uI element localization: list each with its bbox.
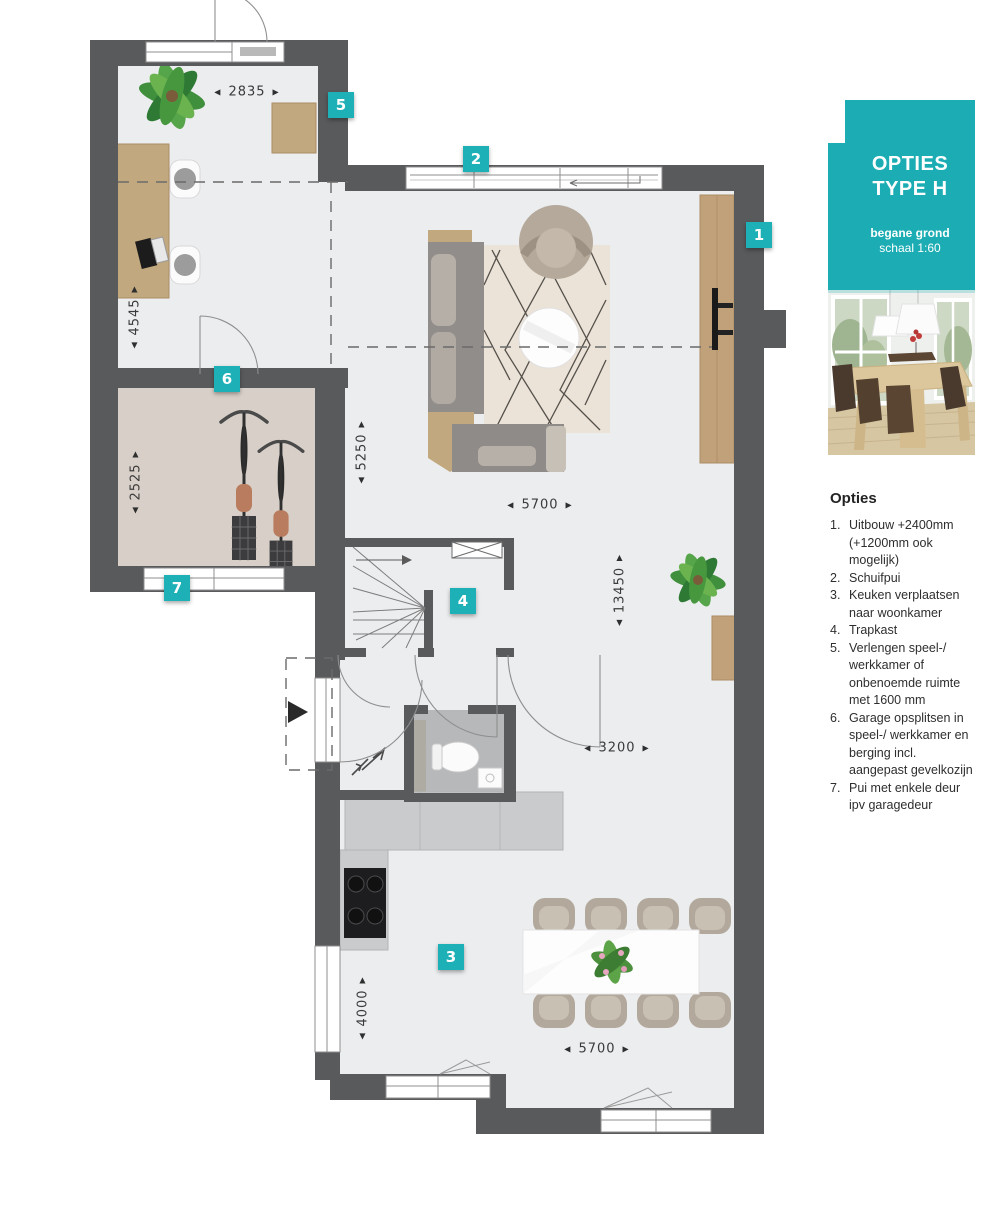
arrow-down-icon: ▼ [359,1032,366,1041]
dining-room-photo [828,290,975,455]
arrow-up-icon: ▲ [358,419,365,428]
dim-3200: ◀ 3200 ▶ [584,741,649,756]
lounge-chair [519,205,593,279]
header-text: OPTIES TYPE H begane grond schaal 1:60 [845,100,975,290]
photo-chair [856,378,882,424]
arrow-down-icon: ▼ [616,618,623,627]
arrow-down-icon: ▼ [132,506,139,515]
option-item: 7. Pui met enkele deur ipv garagedeur [830,780,977,815]
option-item: 4. Trapkast [830,622,977,640]
options-heading: Opties [830,490,977,507]
arrow-left-icon: ◀ [214,88,221,97]
dim-5700-kitchen: ◀ 5700 ▶ [564,1042,629,1057]
entrance-arrow-icon [288,701,308,723]
dim-5250: ▲ 5250 ▼ [355,419,370,484]
dim-2835: ◀ 2835 ▶ [214,85,279,100]
subtitle-floor: begane grond [845,226,975,241]
sink [478,768,502,788]
option-badge-3: 3 [438,944,464,970]
arrow-up-icon: ▲ [616,553,623,562]
option-badge-1: 1 [746,222,772,248]
options-list-section: Opties 1. Uitbouw +2400mm (+1200mm ook m… [830,490,977,815]
arrow-down-icon: ▼ [131,341,138,350]
option-item: 2. Schuifpui [830,570,977,588]
arrow-left-icon: ◀ [507,501,514,510]
option-badge-6: 6 [214,366,240,392]
option-badge-4: 4 [450,588,476,614]
arrow-up-icon: ▲ [359,975,366,984]
floorplan-svg [0,0,820,1231]
page-title-line1: OPTIES [845,152,975,177]
option-item: 3. Keuken verplaatsen naar woonkamer [830,587,977,622]
arrow-right-icon: ▶ [623,1045,630,1054]
arrow-left-icon: ◀ [584,744,591,753]
photo-chair [886,385,914,434]
floorplan-drawing: 1 2 3 4 5 6 7 ◀ 2835 ▶ ▲ 4545 ▼ ▲ 2525 ▼… [0,0,820,1231]
dim-13450: ▲ 13450 ▼ [613,553,628,627]
page-title-line2: TYPE H [845,177,975,202]
subtitle-scale: schaal 1:60 [845,241,975,256]
option-item: 5. Verlengen speel-/ werkkamer of onbeno… [830,640,977,710]
photo-chair [832,364,856,412]
arrow-up-icon: ▲ [131,284,138,293]
arrow-up-icon: ▲ [132,449,139,458]
arrow-right-icon: ▶ [273,88,280,97]
option-badge-2: 2 [463,146,489,172]
arrow-right-icon: ▶ [566,501,573,510]
front-door-office [215,0,267,42]
option-item: 6. Garage opsplitsen in speel-/ werkkame… [830,710,977,780]
option-badge-7: 7 [164,575,190,601]
option-badge-5: 5 [328,92,354,118]
dim-4545: ▲ 4545 ▼ [128,284,143,349]
photo-pendant-lamp [896,304,940,334]
side-cabinet [712,616,736,680]
office-cabinet [272,103,316,153]
arrow-right-icon: ▶ [643,744,650,753]
arrow-left-icon: ◀ [564,1045,571,1054]
option-item: 1. Uitbouw +2400mm (+1200mm ook mogelijk… [830,517,977,570]
coffee-table [519,308,579,368]
toilet [437,742,479,772]
options-list: 1. Uitbouw +2400mm (+1200mm ook mogelijk… [830,517,977,815]
arrow-down-icon: ▼ [358,476,365,485]
dim-2525: ▲ 2525 ▼ [129,449,144,514]
dim-5700-living: ◀ 5700 ▶ [507,498,572,513]
tv [712,288,718,350]
floorplan-page: 1 2 3 4 5 6 7 ◀ 2835 ▶ ▲ 4545 ▼ ▲ 2525 ▼… [0,0,983,1231]
header-accent-step [828,143,845,290]
dim-4000: ▲ 4000 ▼ [356,975,371,1040]
